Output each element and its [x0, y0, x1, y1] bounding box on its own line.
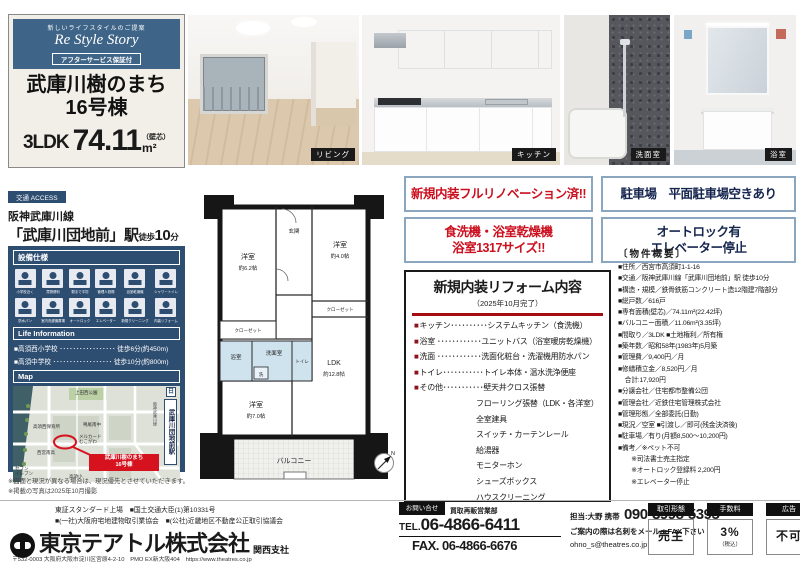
map-railline-label: 阪神武庫川線	[152, 402, 158, 426]
reform-extra-item: モニターホン	[414, 458, 601, 474]
deal-badge-value: 不可	[776, 530, 800, 543]
disclaimer-line: ※図面と現況が異なる場合は、現況優先とさせていただきます。	[8, 477, 198, 487]
washroom-label: 洗面室	[266, 349, 283, 357]
deal-badge-label: 取引形態	[648, 503, 694, 516]
contact-email: ohno_s@theatres.co.jp	[570, 540, 647, 549]
living-opening	[311, 42, 355, 126]
equipment-label: 小学校近く	[17, 289, 34, 294]
equipment-cell: シャワートイレ	[152, 269, 180, 295]
equipment-cell: 防水パン	[13, 298, 38, 324]
reform-item: ■浴室 ････････････ユニットバス（浴室暖房乾燥機）	[414, 334, 601, 350]
department-label: 買取再販営業部	[450, 505, 498, 515]
equipment-label: エレベーター	[95, 318, 115, 323]
highlight-box: 駐車場 平面駐車場空きあり	[601, 176, 796, 212]
equipment-cell: エレベーター	[93, 298, 118, 324]
floor-plan: バルコニー クローゼット クローゼット	[188, 173, 400, 501]
floor-plan-drawing: バルコニー クローゼット クローゼット	[188, 173, 400, 501]
station-name: 「武庫川団地前」駅	[8, 227, 139, 244]
cleaning-icon	[124, 298, 145, 317]
outline-item: ■総戸数／616戸	[618, 296, 798, 307]
walk-prefix: 徒歩	[139, 232, 155, 242]
washer-icon	[42, 298, 63, 317]
company-branch: 関西支社	[253, 543, 289, 556]
life-info-item: ■高須中学校 ･･････････････････ 徒歩10分(約800m)	[14, 356, 179, 366]
shower-bar	[623, 42, 626, 117]
reform-title: 新規内装リフォーム内容	[414, 277, 601, 297]
life-info-title: Life Information	[13, 327, 180, 340]
reform-item: ■洗面 ････････････洗面化粧台・洗濯機用防水パン	[414, 349, 601, 365]
reform-extra-item: 給湯器	[414, 443, 601, 459]
map-label-nursery: 高須西保育所	[33, 424, 60, 429]
company-address: 〒532-0003 大阪府大阪市淀川区宮原4-2-10 PMO EX新大阪404…	[12, 554, 252, 563]
property-name-line2: 16号棟	[9, 97, 184, 120]
deal-badge: 取引形態 売主	[648, 503, 694, 555]
disclaimer-notes: ※図面と現況が異なる場合は、現況優先とさせていただきます。※掲載の写真は2025…	[8, 477, 198, 498]
ceiling-light-icon	[291, 17, 317, 27]
highlight-box: 食洗機・浴室乾燥機 浴室1317サイズ!!	[404, 217, 593, 263]
header-card: 新しいライフスタイルのご提案 Re Style Story アフターサービス保証…	[8, 14, 185, 168]
vanity-cabinet	[703, 111, 771, 150]
area-map: 上田西公園 鳴尾南中 高須西保育所 メルカード むこがわ 西宮南高 セブン イレ…	[13, 386, 180, 482]
tel-number: 06-4866-6411	[421, 515, 520, 534]
spec-panel: 設備仕様 小学校近く 買物便利 駅まで平坦	[8, 246, 185, 472]
svg-text:約6.2帖: 約6.2帖	[239, 264, 258, 272]
outline-item: 合計:17,920円	[618, 375, 798, 386]
access-tag: 交通 ACCESS	[8, 191, 66, 203]
photo-caption: 浴室	[765, 148, 792, 161]
reform-extra-item: 全室建具	[414, 412, 601, 428]
rail-line: 阪神武庫川線	[8, 208, 185, 224]
map-label-mall: メルカード むこがわ	[79, 434, 101, 445]
shower-icon	[124, 269, 145, 288]
kitchen-lower-cabinets	[374, 107, 552, 152]
property-name-line1: 武庫川樹のまち	[9, 74, 184, 97]
svg-text:約7.0帖: 約7.0帖	[247, 412, 266, 420]
deal-badge-value: 売主	[658, 530, 684, 543]
outline-item: ■現況／空室 ■引渡し／即可(残金決済後)	[618, 420, 798, 431]
reform-box: 新規内装リフォーム内容 （2025年10月完了） ■キッチン･･････････…	[404, 270, 611, 502]
equipment-cell: オートロック	[68, 298, 93, 324]
reform-item: ■キッチン･･････････システムキッチン（食洗機）	[414, 318, 601, 334]
equipment-cell: 管理人勤務	[93, 269, 118, 295]
reform-divider	[412, 313, 603, 316]
photo-caption: キッチン	[512, 148, 556, 161]
reform-extra-item: シューズボックス	[414, 474, 601, 490]
floor-area: 74.11	[73, 129, 141, 154]
outline-item: ■備考／※ペット不可	[618, 443, 798, 454]
map-callout-badge: 武庫川樹のまち 16号棟	[89, 454, 159, 471]
reform-extra-item: フローリング張替（LDK・各洋室）	[414, 396, 601, 412]
wall-tile	[684, 30, 693, 39]
tel-label: TEL.	[399, 522, 421, 533]
outline-title: 〔物件概要〕	[618, 246, 798, 260]
kitchen-sink	[485, 99, 529, 105]
tel-row: TEL.06-4866-6411	[399, 515, 561, 537]
map-label-highschool: 西宮南高	[37, 450, 55, 455]
reform-subtitle: （2025年10月完了）	[414, 298, 601, 309]
photo-living: リビング	[188, 15, 359, 165]
closet-label: クローゼット	[235, 327, 262, 334]
map-title: Map	[13, 370, 180, 383]
equipment-cell: 新規クリーニング	[119, 298, 151, 324]
reform-item: ■トイレ･･･････････トイレ本体・温水洗浄便座	[414, 365, 601, 381]
reform-item-list: ■キッチン･･････････システムキッチン（食洗機） ■浴室 ･･･････…	[414, 318, 601, 396]
svg-text:約12.8帖: 約12.8帖	[323, 370, 345, 378]
entrance-label: 玄関	[288, 227, 300, 235]
map-station-label: 武庫川団地前駅	[164, 399, 177, 465]
walk-suffix: 分	[170, 232, 178, 242]
photo-caption: リビング	[311, 148, 355, 161]
equipment-title: 設備仕様	[13, 250, 180, 265]
rail-logo-icon: 日	[166, 387, 176, 397]
deal-badge-label: 手数料	[707, 503, 753, 516]
wall-tile	[776, 29, 786, 40]
outline-item: ※司法書士売主指定	[618, 454, 798, 465]
outline-item: ■専有面積(壁芯)／74.11m²(22.42坪)	[618, 307, 798, 318]
equipment-grid: 小学校近く 買物便利 駅まで平坦 管理人勤務	[13, 269, 180, 324]
outline-item: ■駐車場／有り(月額8,500～10,200円)	[618, 431, 798, 442]
access-section: 交通 ACCESS 阪神武庫川線 「武庫川団地前」駅徒歩10分	[8, 187, 185, 245]
equipment-label: 室内洗濯機置場	[41, 318, 65, 323]
layout-type: 3LDK	[23, 132, 69, 154]
outline-item: ■分譲会社／住宅都市整備公団	[618, 386, 798, 397]
equipment-label: 管理人勤務	[97, 289, 114, 294]
range-hood	[374, 33, 406, 48]
layout-area-row: 3LDK 74.11 （壁芯） m²	[9, 129, 184, 154]
equipment-label: 新規クリーニング	[121, 318, 148, 323]
equipment-label: 防水パン	[18, 318, 32, 323]
equipment-label: 駅まで平坦	[71, 289, 88, 294]
bathtub	[568, 108, 626, 159]
equipment-cell: 内装リフォーム	[152, 298, 180, 324]
equipment-label: シャワートイレ	[154, 289, 178, 294]
outline-item: ※エレベーター停止	[618, 477, 798, 488]
elevator-icon	[95, 298, 116, 317]
station-line: 「武庫川団地前」駅徒歩10分	[8, 224, 185, 245]
after-service-badge: アフターサービス保証付	[52, 53, 141, 65]
equipment-label: 浴室乾燥機	[126, 289, 143, 294]
outline-item: ■バルコニー面積／11.06m²(3.35坪)	[618, 318, 798, 329]
outline-list: ■住所／西宮市高須町1-1-16■交通／阪神武庫川線「武庫川団地前」駅 徒歩10…	[618, 262, 798, 488]
shower-head-icon	[620, 39, 630, 45]
room-7-0-label: 洋室	[249, 400, 263, 409]
equipment-label: オートロック	[70, 318, 90, 323]
footer-divider	[0, 500, 800, 501]
vanity-mirror	[706, 26, 769, 95]
outline-item: ■修繕積立金／8,520円／月	[618, 364, 798, 375]
outline-item: ■間取り／3LDK ■土地権利／所有権	[618, 330, 798, 341]
map-label-conv: セブン イレブン	[15, 466, 33, 477]
laundry-label: 洗	[259, 371, 264, 378]
deal-badge-value: 3%	[720, 526, 739, 539]
brand-banner: 新しいライフスタイルのご提案 Re Style Story アフターサービス保証…	[13, 19, 180, 69]
deal-badge: 広告 不可	[766, 503, 800, 555]
property-name: 武庫川樹のまち 16号棟	[9, 74, 184, 120]
room-4-0-label: 洋室	[333, 240, 347, 249]
compass-n: N	[391, 451, 395, 457]
renovation-icon	[155, 298, 176, 317]
photo-vanity: 浴室	[674, 15, 796, 165]
pillar	[200, 433, 234, 479]
flyer-page: 新しいライフスタイルのご提案 Re Style Story アフターサービス保証…	[0, 0, 800, 565]
deal-badge: 手数料 3% （税込）	[707, 503, 753, 555]
highlight-box: 新規内装フルリノベーション済!!	[404, 176, 593, 212]
ldk-label: LDK	[327, 360, 341, 367]
equipment-cell: 買物便利	[39, 269, 67, 295]
map-label-school: 鳴尾南中	[83, 422, 101, 427]
certifications: 東証スタンダード上場 ■国土交通大臣(1)第10331号■(一社)大阪府宅地建物…	[55, 506, 283, 527]
manager-icon	[95, 269, 116, 288]
reform-extra-item: スイッチ・カーテンレール	[414, 427, 601, 443]
inquiry-tab: お問い合せ	[399, 502, 445, 515]
brand-logo: Re Style Story	[13, 32, 180, 49]
outline-item: ■構造・規模／鉄骨鉄筋コンクリート造12階建7階部分	[618, 285, 798, 296]
fax-number: FAX. 06-4866-6676	[412, 538, 517, 553]
bath-area	[220, 341, 252, 381]
equipment-label: 買物便利	[46, 289, 60, 294]
outline-item: ■管理形態／全部委託(日勤)	[618, 409, 798, 420]
equipment-cell: 浴室乾燥機	[119, 269, 151, 295]
reform-extra-list: フローリング張替（LDK・各洋室）全室建具スイッチ・カーテンレール給湯器モニター…	[414, 396, 601, 505]
life-info-item: ■高須西小学校 ･････････････････ 徒歩6分(約450m)	[14, 343, 179, 353]
bath-label: 浴室	[230, 353, 242, 361]
outline-item: ■住所／西宮市高須町1-1-16	[618, 262, 798, 273]
toilet-icon	[155, 269, 176, 288]
brand-tagline: 新しいライフスタイルのご提案	[13, 23, 180, 32]
map-label-park: 上田西公園	[75, 390, 98, 395]
life-info-list: ■高須西小学校 ･････････････････ 徒歩6分(約450m)■高須…	[13, 343, 180, 366]
laundry-pan-icon	[15, 298, 36, 317]
outline-item: ■管理会社／近鉄住宅管理株式会社	[618, 398, 798, 409]
kitchen-upper-cabinets	[398, 30, 552, 69]
ceiling-light-icon	[236, 21, 270, 35]
cooktop	[378, 98, 422, 105]
walk-icon	[69, 269, 90, 288]
deal-badges: 取引形態 売主 手数料 3% （税込） 広告 不可	[648, 503, 800, 555]
closet-label: クローゼット	[327, 306, 354, 313]
room-6-2-label: 洋室	[241, 252, 255, 261]
autolock-icon	[69, 298, 90, 317]
outline-item: ■管理費／9,400円／月	[618, 352, 798, 363]
school-icon	[15, 269, 36, 288]
photo-caption: 洗面室	[631, 148, 667, 161]
balcony-label: バルコニー	[277, 457, 312, 465]
outline-item: ■交通／阪神武庫川線「武庫川団地前」駅 徒歩10分	[618, 273, 798, 284]
outline-item: ※オートロック登録料 2,200円	[618, 465, 798, 476]
svg-text:約4.0帖: 約4.0帖	[331, 252, 350, 260]
outline-item: ■築年数／昭和58年(1983年)5月築	[618, 341, 798, 352]
certification-line: 東証スタンダード上場 ■国土交通大臣(1)第10331号	[55, 506, 283, 517]
photo-bathroom: 洗面室	[564, 15, 670, 165]
property-outline: 〔物件概要〕 ■住所／西宮市高須町1-1-16■交通／阪神武庫川線「武庫川団地前…	[618, 246, 798, 488]
equipment-cell: 駅まで平坦	[68, 269, 93, 295]
toilet-label: トイレ	[295, 359, 309, 364]
deal-badge-label: 広告	[766, 503, 800, 516]
shopping-icon	[42, 269, 63, 288]
reform-item: ■その他･･･････････壁天井クロス張替	[414, 380, 601, 396]
disclaimer-line: ※掲載の写真は2025年10月撮影	[8, 487, 198, 497]
equipment-label: 内装リフォーム	[154, 318, 178, 323]
walk-minutes: 10	[155, 227, 171, 244]
photo-kitchen: キッチン	[362, 15, 560, 165]
contact-person: 担当:大野 携帯	[570, 512, 620, 521]
area-unit: m²	[142, 142, 157, 154]
deal-badge-note: （税込）	[719, 540, 741, 548]
equipment-cell: 室内洗濯機置場	[39, 298, 67, 324]
equipment-cell: 小学校近く	[13, 269, 38, 295]
living-window	[200, 54, 268, 114]
